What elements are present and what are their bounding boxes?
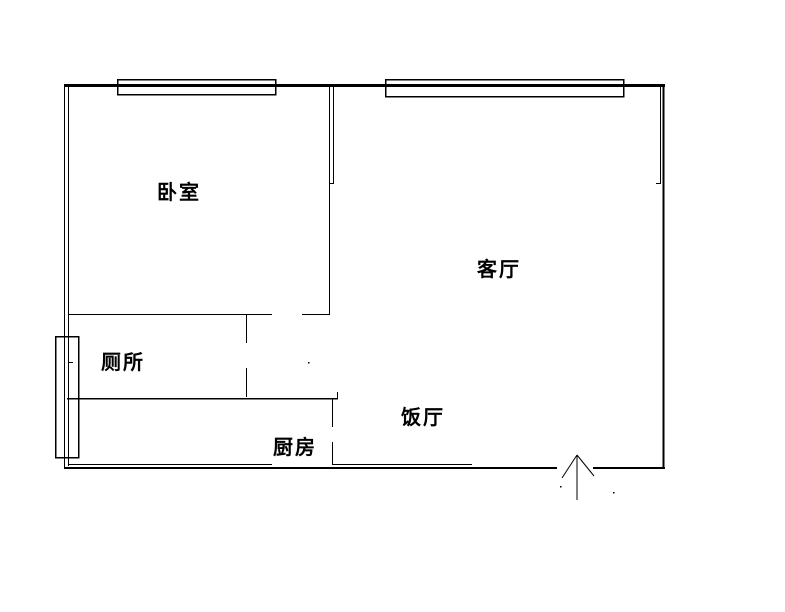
floor-plan: 卧室 客厅 厕所 饭厅 厨房 [0, 0, 785, 612]
floor-plan-drawing [0, 0, 785, 612]
room-label-dining-room: 饭厅 [401, 408, 445, 428]
ink-speck-1 [560, 486, 562, 488]
ink-speck-3 [308, 362, 310, 364]
room-label-living-room: 客厅 [477, 260, 521, 280]
toilet-window [56, 337, 79, 458]
room-label-kitchen: 厨房 [273, 438, 317, 458]
entrance-arrow-left-wing [562, 455, 577, 478]
entrance-arrow-right-wing [577, 455, 594, 476]
ink-speck-2 [613, 492, 615, 494]
living-room-window [386, 80, 624, 97]
room-label-bedroom: 卧室 [157, 183, 201, 203]
room-label-toilet: 厕所 [101, 353, 145, 373]
